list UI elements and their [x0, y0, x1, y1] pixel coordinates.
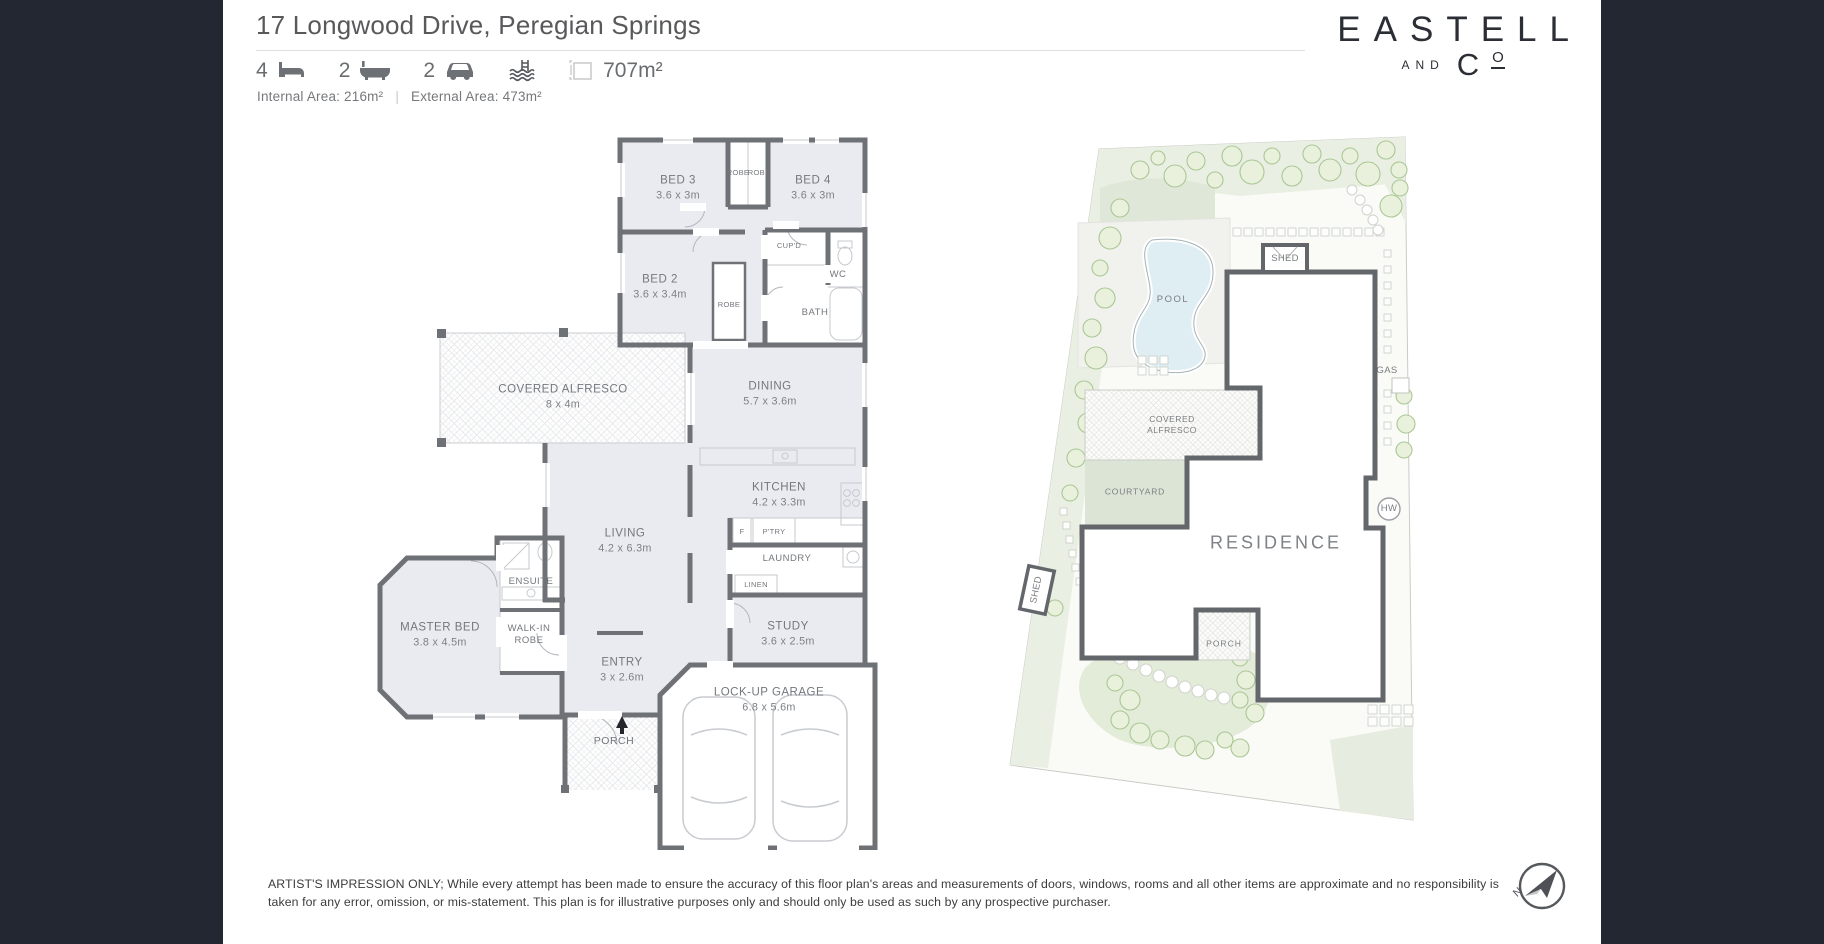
brand-co-c: C — [1457, 52, 1479, 78]
room-label-alfresco: COVERED ALFRESCO8 x 4m — [498, 383, 627, 412]
site-label-courtyard: COURTYARD — [1105, 486, 1165, 497]
label-ensuite: ENSUITE — [509, 576, 554, 588]
pool-icon — [508, 58, 536, 82]
room-label-kitchen: KITCHEN4.2 x 3.3m — [752, 481, 806, 510]
page-title: 17 Longwood Drive, Peregian Springs — [256, 10, 701, 41]
internal-area-label: Internal Area: 216m² — [257, 89, 383, 104]
room-label-master: MASTER BED3.8 x 4.5m — [400, 621, 480, 650]
site-label-porch: PORCH — [1206, 638, 1242, 649]
land-area-value: 707m² — [603, 60, 663, 81]
floorplan-sheet: 17 Longwood Drive, Peregian Springs 4 2 … — [223, 0, 1601, 944]
beds-count: 4 — [256, 60, 268, 81]
label-linen: LINEN — [744, 580, 768, 590]
floor-plan-drawing — [375, 135, 910, 850]
title-divider — [256, 50, 1305, 51]
room-label-dining: DINING5.7 x 3.6m — [743, 380, 796, 409]
baths-count: 2 — [339, 60, 351, 81]
site-label-residence: RESIDENCE — [1210, 531, 1342, 554]
floor-plan: BED 33.6 x 3m BED 43.6 x 3m BED 23.6 x 3… — [375, 135, 910, 850]
site-plan: POOL SHED GAS COVERED ALFRESCO COURTYARD… — [1000, 128, 1420, 838]
external-area-label: External Area: 473m² — [411, 89, 542, 104]
room-label-garage: LOCK-UP GARAGE6.8 x 5.6m — [714, 686, 824, 715]
room-label-bed4: BED 43.6 x 3m — [791, 174, 835, 203]
property-stats: 4 2 2 — [256, 55, 663, 85]
site-label-pool: POOL — [1157, 294, 1189, 306]
room-label-study: STUDY3.6 x 2.5m — [761, 620, 814, 649]
site-plan-drawing — [1000, 128, 1420, 838]
brand-and: AND — [1401, 58, 1444, 78]
label-fridge: F — [740, 527, 745, 537]
brand-logo: EASTELL AND C O — [1337, 10, 1569, 78]
compass-icon: N — [1511, 858, 1569, 916]
site-label-covered-alfresco: COVERED ALFRESCO — [1136, 414, 1208, 436]
land-area-icon — [568, 59, 594, 81]
label-pantry: P'TRY — [763, 527, 786, 537]
room-label-entry: ENTRY3 x 2.6m — [600, 656, 644, 685]
area-separator: | — [395, 89, 399, 104]
bed-icon — [277, 59, 307, 81]
label-laundry: LAUNDRY — [763, 553, 812, 565]
brand-name: EASTELL — [1337, 10, 1582, 50]
label-robe-bed2: ROBE — [718, 300, 740, 310]
label-walk-in-robe: WALK-IN ROBE — [500, 623, 558, 647]
room-label-bed3: BED 33.6 x 3m — [656, 174, 700, 203]
label-robe-left: ROBE — [727, 168, 749, 178]
site-label-shed-top: SHED — [1271, 253, 1299, 265]
label-wc: WC — [830, 269, 847, 281]
car-icon — [444, 59, 476, 81]
area-summary: Internal Area: 216m² | External Area: 47… — [257, 89, 542, 104]
bath-icon — [359, 59, 391, 81]
label-bath: BATH — [802, 307, 829, 319]
brand-co-o: O — [1491, 49, 1505, 69]
label-cupboard: CUP'D — [777, 241, 801, 251]
label-robe-right: ROBE — [748, 168, 770, 178]
site-label-gas: GAS — [1377, 365, 1398, 377]
site-label-hw: HW — [1381, 503, 1397, 515]
disclaimer-text: ARTIST'S IMPRESSION ONLY; While every at… — [268, 876, 1508, 912]
label-porch: PORCH — [594, 735, 634, 749]
room-label-living: LIVING4.2 x 6.3m — [598, 527, 651, 556]
room-label-bed2: BED 23.6 x 3.4m — [633, 273, 686, 302]
image-viewer-background: { "header": { "title": "17 Longwood Driv… — [0, 0, 1824, 944]
cars-count: 2 — [423, 60, 435, 81]
